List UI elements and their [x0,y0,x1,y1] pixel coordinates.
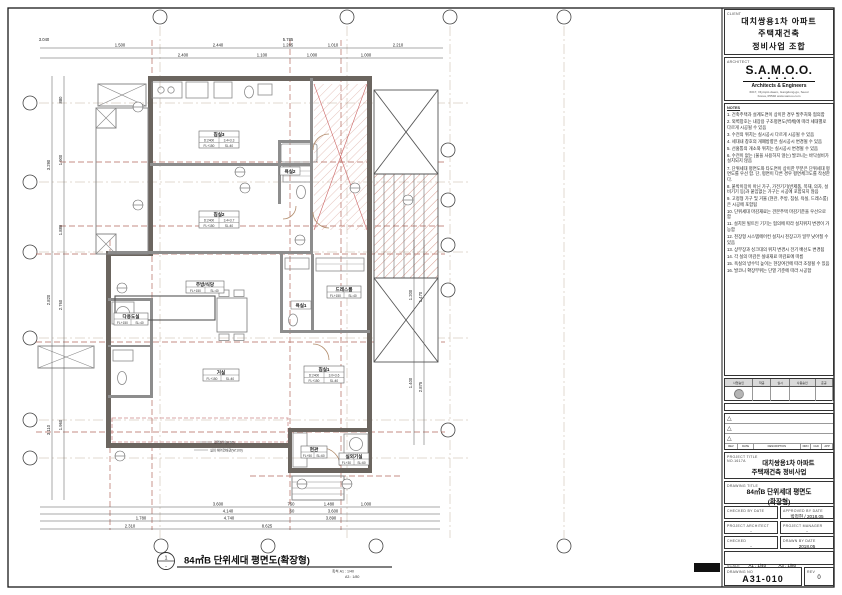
rev-label: REV [807,570,831,574]
signoff-row-1: CHECKED BY DATE APPROVED BY DATE 박정현 / 2… [724,506,834,519]
svg-text:3.4×3.7: 3.4×3.7 [224,219,235,223]
svg-text:2.760: 2.760 [58,299,63,310]
svg-text:1.880: 1.880 [58,224,63,235]
svg-text:1.285: 1.285 [283,43,294,48]
sheet-plan-title: 84㎡B 단위세대 평면도(확장형) [184,555,310,567]
svg-text:FL+30: FL+30 [342,461,351,465]
balcony-extension-outline [112,418,288,442]
svg-text:1.400: 1.400 [408,377,413,388]
svg-text:4.740: 4.740 [224,516,235,521]
svg-text:1.500: 1.500 [115,43,126,48]
architect-tagline: Architects & Engineers [743,81,816,89]
svg-text:3.110: 3.110 [46,424,51,435]
signoff-row-2: PROJECT ARCHITECT - PROJECT MANAGER - [724,521,834,534]
room-name: 현관 [310,446,319,453]
architect-box: ARCHITECT S.A.M.O.O. ▲▲▲▲▲ Architects & … [724,57,834,101]
project-no: NO.1617A [727,459,746,463]
svg-text:1.900: 1.900 [58,154,63,165]
svg-text:5.785: 5.785 [283,37,294,42]
rev-col-drn: DRN [801,444,812,449]
svg-text:SL:60: SL:60 [316,454,325,458]
svg-text:1.960: 1.960 [58,419,63,430]
note-item: 8. 붙박이장이 아닌 가구, 가전기기(반제품, 목재, 의자, 설비기기 등… [727,184,831,195]
title-block: CLIENT 대치쌍용1차 아파트 주택재건축 정비사업 조합 ARCHITEC… [724,9,834,586]
drawing-title-box: DRAWING TITLE 84㎡B 단위세대 평면도 (확장형) [724,481,834,504]
svg-text:FL+150: FL+150 [330,294,341,298]
svg-text:SL:40: SL:40 [135,321,144,325]
rev-value: 0 [807,575,831,581]
plan-scale-a1: 축척 A1 : 1/40 [332,569,354,574]
room-tag-entrance: 현관 FL+50 SL:60 [301,446,327,458]
svg-text:1: 1 [164,556,167,562]
svg-text:1.000: 1.000 [307,53,318,58]
svg-text:3.0×3.6: 3.0×3.6 [329,374,340,378]
project-manager-value: - [783,529,831,534]
svg-text:D:2400: D:2400 [204,139,215,143]
callout-ac-pipe: 실외 에어컨배관(W:100) [210,448,243,453]
project-architect-value: - [727,529,775,534]
approval-stamp-table: 사업승인 착공 실시 사용승인 준공 [724,378,834,401]
drawing-number-row: DRAWING NO A31-010 REV 0 [724,567,834,586]
svg-text:-: - [165,564,167,570]
note-item: 7. 단위세대 평면도와 타도면이 상이한 부분은 단위세대 평면도를 우선 함… [727,166,831,183]
svg-text:2.820: 2.820 [46,294,51,305]
rev-col-app: APP [822,444,833,449]
room-tag-utility: 다용도실 FL+150 SL:40 [114,313,148,325]
room-name: 침실1 [318,366,329,373]
callout-baseboard: 걸레받이(H:60) [214,440,235,445]
room-name: 주방/식당 [196,281,215,288]
svg-text:D:2400: D:2400 [204,219,215,223]
room-tag-bath2: 욕실2 [280,167,300,175]
svg-text:3.040: 3.040 [39,37,50,42]
grid-centerlines [39,26,564,538]
note-item: 5. 선홈통의 개소와 위치는 실시공시 변경될 수 있음 [727,146,831,152]
checked-value: - [727,544,775,549]
note-item: 14. 각 실의 마감은 실내재료 마감표에 따름 [727,254,831,260]
client-line-1: 대치쌍용1차 아파트 [727,16,831,28]
svg-text:3.600: 3.600 [213,502,224,507]
room-tag-living: 거실 FL+150 SL:40 [203,369,239,381]
drawn-by-label: DRAWN BY DATE [783,539,831,543]
project-title-box: PROJECT TITLE NO.1617A 대치쌍용1차 아파트 주택재건축 … [724,452,834,479]
room-name: 드레스룸 [336,286,354,293]
project-title-line-2: 주택재건축 정비사업 [727,468,831,477]
checked-label: CHECKED [727,539,775,543]
svg-text:SL:40: SL:40 [330,379,339,383]
svg-text:2.400: 2.400 [178,53,189,58]
svg-text:FL+50: FL+50 [303,454,312,458]
signoff-row-3: CHECKED - DRAWN BY DATE 2018.05 [724,536,834,549]
revision-triangle: △ [727,436,732,442]
svg-text:3.4×3.3: 3.4×3.3 [224,139,235,143]
revision-table: △ △ △ REV DATE DESCRIPTION DRN CHK APP [724,413,834,450]
room-name: 실외기실 [346,453,363,460]
drawing-title-line-1: 84㎡B 단위세대 평면도 [727,488,831,498]
scale-box: SCALE A1 : 1/40 A3 : 1/80 [724,551,834,565]
svg-text:3.600: 3.600 [328,509,339,514]
svg-text:2.875: 2.875 [418,381,423,392]
svg-text:FL+150: FL+150 [309,379,320,383]
stamp-seal [734,389,744,399]
note-item: 13. 상부장과 싱크대의 위치 변경시 전기 배선도 변경됨 [727,247,831,253]
svg-text:60: 60 [290,509,295,514]
svg-text:SL:60: SL:60 [357,461,366,465]
svg-text:1.780: 1.780 [136,516,147,521]
room-name: 욕실1 [295,302,306,309]
room-name: 욕실2 [284,168,295,175]
rev-col-chk: CHK [811,444,822,449]
revision-triangle: △ [727,416,732,422]
room-name: 침실3 [213,131,224,138]
rev-col-date: DATE [738,444,754,449]
room-tag-bath1: 욕실1 [291,301,311,309]
room-tag-bedroom3: 침실3 D:2400 3.4×3.3 FL+150 SL:40 [199,131,239,148]
room-tag-acroom: 실외기실 FL+30 SL:60 [339,453,369,465]
samoo-logo-marks: ▲▲▲▲▲ [727,76,831,80]
note-item: 16. 발코니 확장부위는 단열 기준에 따라 시공함 [727,268,831,274]
notes-box: NOTES 1. 건축주택과 설계도면이 상이한 경우 발주처와 협의함 2. … [724,103,834,376]
floor-plan-canvas: 침실3 D:2400 3.4×3.3 FL+150 SL:40 침실2 D:24… [0,0,842,595]
svg-text:SL:40: SL:40 [210,289,219,293]
dims-left: 3.290 2.820 3.110 880 1.900 1.880 2.760 … [46,96,63,435]
svg-text:1.010: 1.010 [328,43,339,48]
client-line-3: 정비사업 조합 [727,41,831,53]
svg-text:1.470: 1.470 [418,291,423,302]
approved-by-value: 박정현 / 2018.05 [783,514,831,520]
note-item: 9. 고정형 가구 및 거울 (현관, 주방, 침실, 욕실, 드레스룸)은 시… [727,196,831,207]
checked-by-label: CHECKED BY DATE [727,509,775,513]
svg-text:1.000: 1.000 [361,53,372,58]
room-tag-bedroom1: 침실1 D:2400 3.0×3.6 FL+150 SL:40 [304,366,344,383]
svg-text:SL:40: SL:40 [225,144,234,148]
project-architect-label: PROJECT ARCHITECT [727,524,775,528]
note-item: 6. 수전이 없는 (물을 사용하지 않는) 발코니는 바닥설비가 설치되지 않… [727,153,831,164]
svg-text:FL+150: FL+150 [117,321,128,325]
room-tag-dress: 드레스룸 FL+150 SL:40 [327,286,361,298]
dims-bottom: 3.600 750 1.480 1.000 4.140 60 3.600 1.7… [125,502,372,529]
svg-text:2.310: 2.310 [125,524,136,529]
spacer-box [724,403,834,411]
stamp-col-2: 착공 [753,379,771,386]
svg-text:1.480: 1.480 [324,502,335,507]
svg-text:FL+150: FL+150 [190,289,201,293]
svg-text:750: 750 [288,502,296,507]
note-item: 12. 천장형 시스템에어컨 설치시 천장고가 일부 낮아질 수 있음 [727,234,831,245]
architect-address-2: Korea, 05540 www.samoo.com [727,94,831,98]
svg-text:3.890: 3.890 [326,516,337,521]
svg-text:1.200: 1.200 [408,289,413,300]
client-box: CLIENT 대치쌍용1차 아파트 주택재건축 정비사업 조합 [724,9,834,55]
notes-label: NOTES [727,106,831,110]
svg-text:FL+150: FL+150 [207,377,218,381]
note-item: 3. 수전의 위치는 실시공시 다르게 시공될 수 있음 [727,132,831,138]
svg-text:FL+150: FL+150 [204,224,215,228]
room-tag-kitchen: 주방/식당 FL+150 SL:40 [186,281,224,293]
svg-text:2.210: 2.210 [393,43,404,48]
rev-col-rev: REV [725,444,738,449]
svg-text:880: 880 [58,96,63,104]
stamp-col-1: 사업승인 [725,379,753,386]
svg-text:2.440: 2.440 [213,43,224,48]
note-item: 10. 단위세대 마감재료는 견본주택 마감기준을 우선으로 함 [727,209,831,220]
room-name: 거실 [217,369,225,376]
svg-text:8.625: 8.625 [262,524,273,529]
room-tag-bedroom2: 침실2 D:2400 3.4×3.7 FL+150 SL:40 [199,211,239,228]
svg-text:SL:40: SL:40 [225,224,234,228]
note-item: 11. 설치된 빌트인 기기는 협의에 따라 설치위치 변경이 가능함 [727,221,831,232]
svg-text:4.140: 4.140 [223,509,234,514]
room-name: 다용도실 [123,313,140,320]
client-line-2: 주택재건축 [727,28,831,40]
svg-text:1.100: 1.100 [257,53,268,58]
hatch-zone [314,84,367,230]
stamp-col-5: 준공 [816,379,833,386]
room-name: 침실2 [213,211,224,218]
drawing-no-value: A31-010 [727,574,799,584]
drawing-title-bar: 1 - 84㎡B 단위세대 평면도(확장형) 축척 A1 : 1/40 A3 :… [158,553,393,580]
note-item: 4. 세대내 창호의 개폐방향은 실시공시 변경될 수 있음 [727,139,831,145]
drawing-sheet: 침실3 D:2400 3.4×3.3 FL+150 SL:40 침실2 D:24… [0,0,842,595]
svg-text:3.290: 3.290 [46,159,51,170]
rev-col-description: DESCRIPTION [754,444,800,449]
svg-text:1.000: 1.000 [361,502,372,507]
svg-text:SL:40: SL:40 [226,377,235,381]
project-manager-label: PROJECT MANAGER [783,524,831,528]
plan-scale-a3: A3 : 1/80 [345,575,359,579]
svg-text:SL:40: SL:40 [348,294,357,298]
stamp-col-3: 실시 [771,379,789,386]
core-shafts [374,90,438,362]
note-item: 1. 건축주택과 설계도면이 상이한 경우 발주처와 협의함 [727,112,831,118]
stamp-col-4: 사용승인 [790,379,816,386]
svg-text:FL+150: FL+150 [204,144,215,148]
dims-top: 3.040 5.785 1.500 2.440 1.285 1.010 2.21… [39,37,404,58]
note-item: 2. 외벽창호는 내장용 구조평면도(벽체)에 따라 세대별로 다르게 시공될 … [727,119,831,130]
approved-by-label: APPROVED BY DATE [783,509,831,513]
svg-text:D:2400: D:2400 [309,374,320,378]
note-item: 15. 욕실의 방수턱 높이는 현장여건에 따라 조정될 수 있음 [727,261,831,267]
drawn-by-value: 2018.05 [783,544,831,549]
revision-triangle: △ [727,426,732,432]
